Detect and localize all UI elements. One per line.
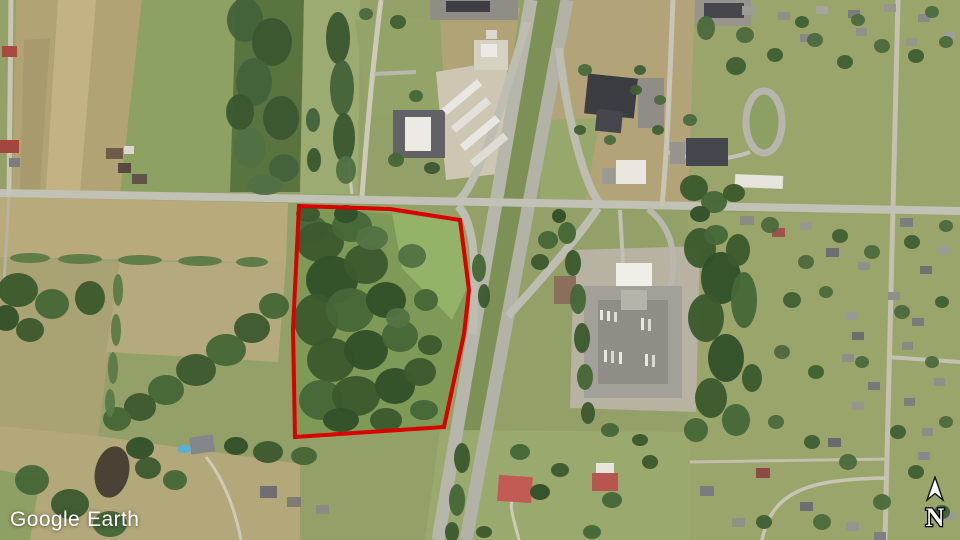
north-arrow-icon <box>927 477 943 500</box>
google-earth-watermark: GoogleEarth <box>10 508 139 532</box>
north-label: N <box>926 503 945 532</box>
google-logo-text: Google <box>10 508 80 531</box>
earth-logo-text: Earth <box>87 508 139 531</box>
north-compass[interactable]: N <box>922 476 948 532</box>
satellite-imagery[interactable] <box>0 0 960 540</box>
google-earth-viewport[interactable]: GoogleEarth N <box>0 0 960 540</box>
oval-lot <box>746 91 782 153</box>
